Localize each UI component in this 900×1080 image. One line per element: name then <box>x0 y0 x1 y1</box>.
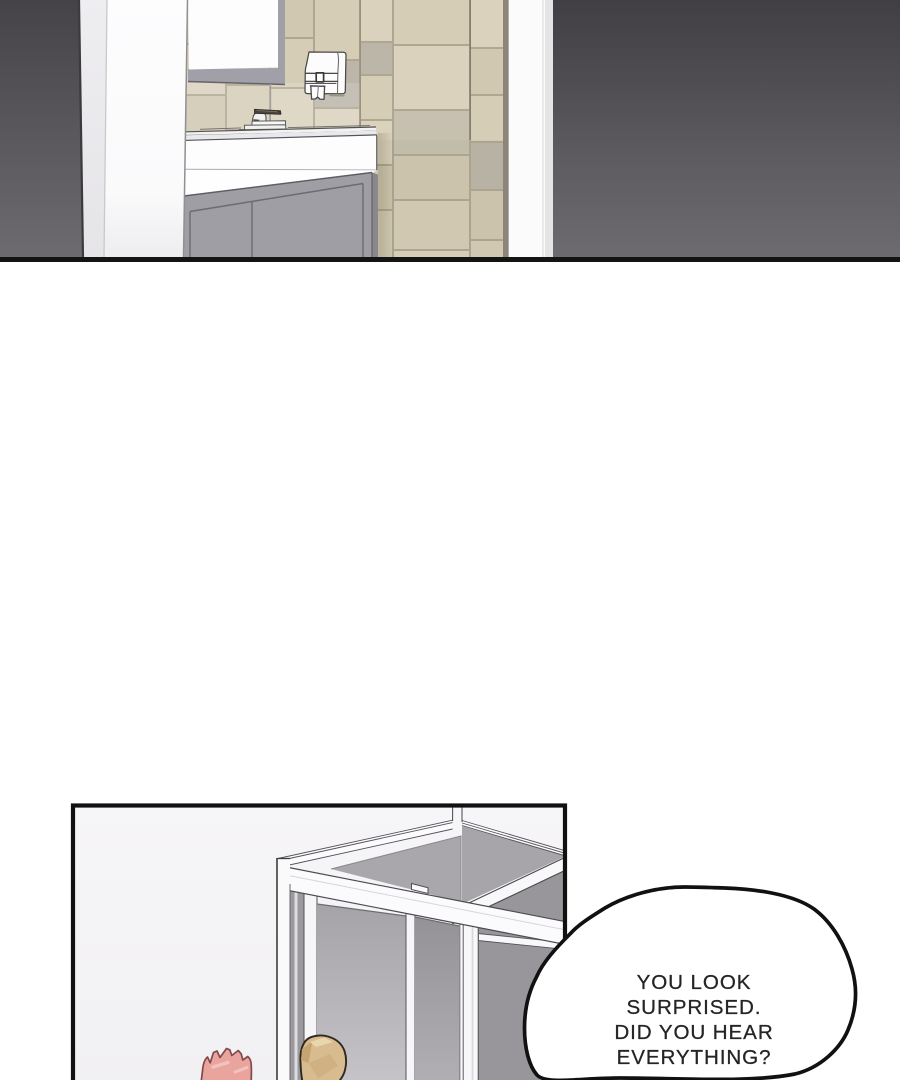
svg-text:YOU LOOK: YOU LOOK <box>637 971 752 994</box>
svg-text:SURPRISED.: SURPRISED. <box>627 996 762 1019</box>
svg-text:EVERYTHING?: EVERYTHING? <box>617 1046 772 1069</box>
svg-text:DID YOU HEAR: DID YOU HEAR <box>614 1021 773 1044</box>
